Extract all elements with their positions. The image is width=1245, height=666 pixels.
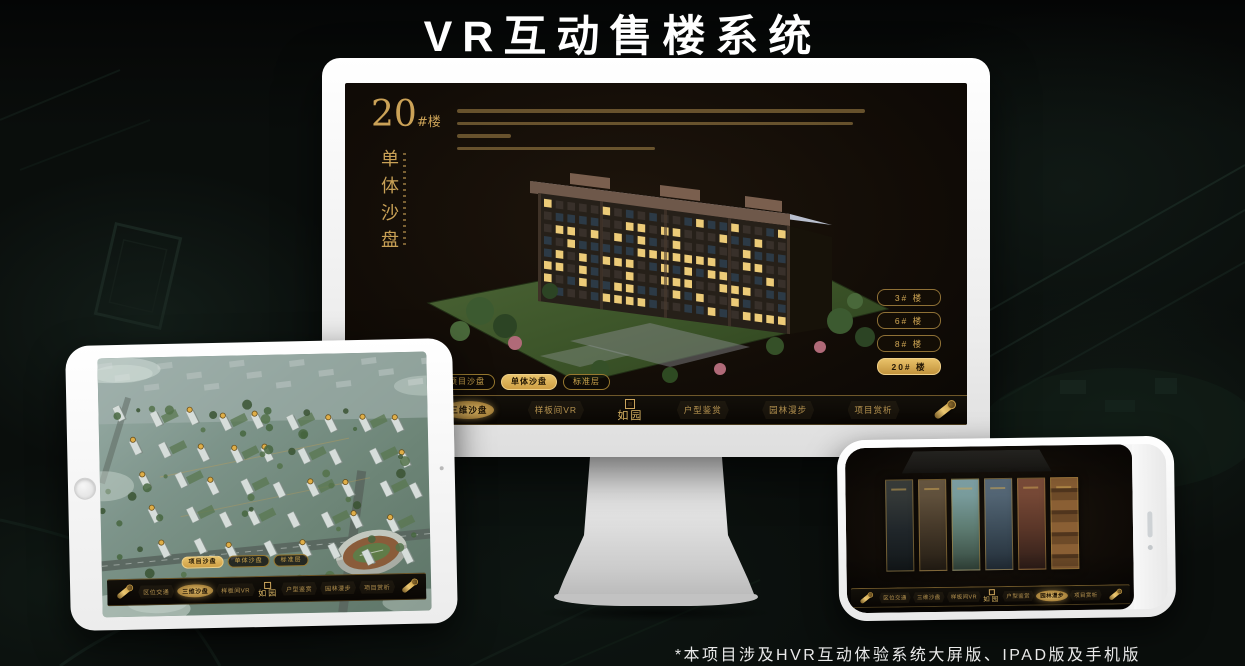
tablet-screen: 项目沙盘 单体沙盘 标准层 区位交通 三维沙盘 样板间VR 如园 户型鉴赏 园林… [97,352,431,618]
gallery-panel[interactable] [951,478,980,570]
nav-item-floorplan[interactable]: 户型鉴赏 [281,582,317,596]
tablet-device: 项目沙盘 单体沙盘 标准层 区位交通 三维沙盘 样板间VR 如园 户型鉴赏 园林… [65,338,458,631]
home-button-icon[interactable] [74,477,96,499]
section-title-vertical: 单体沙盘 [375,149,401,257]
ruyuan-logo: 如园 [983,589,1000,603]
nav-item-project-review[interactable]: 项目赏析 [1070,589,1102,600]
floor-button-active[interactable]: 20# 楼 [877,358,941,375]
nav-item-floorplan[interactable]: 户型鉴赏 [677,401,729,419]
phone-notch-area [1132,444,1168,609]
subtab-single-sandbox[interactable]: 单体沙盘 [501,374,557,390]
tablet-frame: 项目沙盘 单体沙盘 标准层 区位交通 三维沙盘 样板间VR 如园 户型鉴赏 园林… [65,338,458,631]
ruyuan-logo: 如园 [258,581,278,597]
nav-item-location[interactable]: 区位交通 [879,592,911,603]
seal-icon [625,399,635,409]
nav-item-floorplan[interactable]: 户型鉴赏 [1002,590,1034,601]
page-title: VR互动售楼系统 [0,2,1245,64]
floor-button[interactable]: 3# 楼 [877,289,941,306]
nav-item-garden-walk[interactable]: 园林漫步 [320,581,356,595]
camera-icon [1148,544,1153,549]
description-text-line [457,109,865,113]
nav-item-garden-walk[interactable]: 园林漫步 [1036,590,1068,601]
scroll-icon[interactable] [116,585,132,599]
nav-item-showroom-vr[interactable]: 样板间VR [947,591,981,602]
nav-item-garden-walk[interactable]: 园林漫步 [762,401,814,419]
phone-device: 区位交通 三维沙盘 样板间VR 如园 户型鉴赏 园林漫步 项目赏析 [837,436,1176,622]
nav-item-3d-sandbox[interactable]: 三维沙盘 [913,591,945,602]
floor-button-group: 3# 楼 6# 楼 8# 楼 20# 楼 [877,289,941,375]
monitor-base [554,594,758,606]
nav-item-location[interactable]: 区位交通 [138,585,174,599]
logo-text: 如园 [983,596,1000,603]
nav-item-3d-sandbox[interactable]: 三维沙盘 [177,584,213,598]
floor-button[interactable]: 6# 楼 [877,312,941,329]
description-text-line [457,134,511,138]
building-headline: 20#楼 [371,97,441,133]
phone-screen: 区位交通 三维沙盘 样板间VR 如园 户型鉴赏 园林漫步 项目赏析 [845,444,1134,613]
gallery-panel[interactable] [1050,477,1079,569]
scroll-icon[interactable] [859,592,872,604]
seal-icon [264,581,271,588]
subtab-single-sandbox[interactable]: 单体沙盘 [227,555,269,568]
nav-item-project-review[interactable]: 项目赏析 [359,580,395,594]
monitor-shadow [536,604,776,622]
nav-item-showroom-vr[interactable]: 样板间VR [216,583,255,597]
gallery-panel[interactable] [984,478,1013,570]
floor-button[interactable]: 8# 楼 [877,335,941,352]
subtab-project-sandbox[interactable]: 项目沙盘 [181,556,223,569]
logo-text: 如园 [258,589,278,597]
camera-icon [440,466,444,470]
scroll-icon[interactable] [1108,589,1121,601]
building-number-suffix: #楼 [417,115,441,130]
subtab-standard-floor[interactable]: 标准层 [563,374,610,390]
footnote: *本项目涉及HVR互动体验系统大屏版、IPAD版及手机版 [675,641,1141,665]
logo-text: 如园 [617,410,643,421]
nav-item-project-review[interactable]: 项目赏析 [848,401,900,419]
gallery-panels [885,477,1079,572]
description-text-line [457,122,853,126]
building-3d-render[interactable] [420,141,890,391]
phone-frame: 区位交通 三维沙盘 样板间VR 如园 户型鉴赏 园林漫步 项目赏析 [837,436,1176,622]
decorative-caption-line [403,153,406,249]
gallery-panel[interactable] [885,479,914,571]
gallery-panel[interactable] [1017,477,1046,569]
subtab-standard-floor[interactable]: 标准层 [274,554,309,567]
scroll-icon[interactable] [401,579,417,593]
speaker-icon [1147,511,1152,537]
page: VR互动售楼系统 20#楼 单体沙盘 [0,0,1245,666]
building-number: 20 [371,94,417,135]
nav-item-showroom-vr[interactable]: 样板间VR [528,401,584,419]
interior-ceiling-beam [901,449,1051,473]
gallery-panel[interactable] [918,479,947,571]
monitor-subtabs: 项目沙盘 单体沙盘 标准层 [439,374,610,390]
ruyuan-logo: 如园 [617,399,643,421]
scroll-icon[interactable] [933,400,955,419]
phone-nav-bar: 区位交通 三维沙盘 样板间VR 如园 户型鉴赏 园林漫步 项目赏析 [851,584,1130,608]
